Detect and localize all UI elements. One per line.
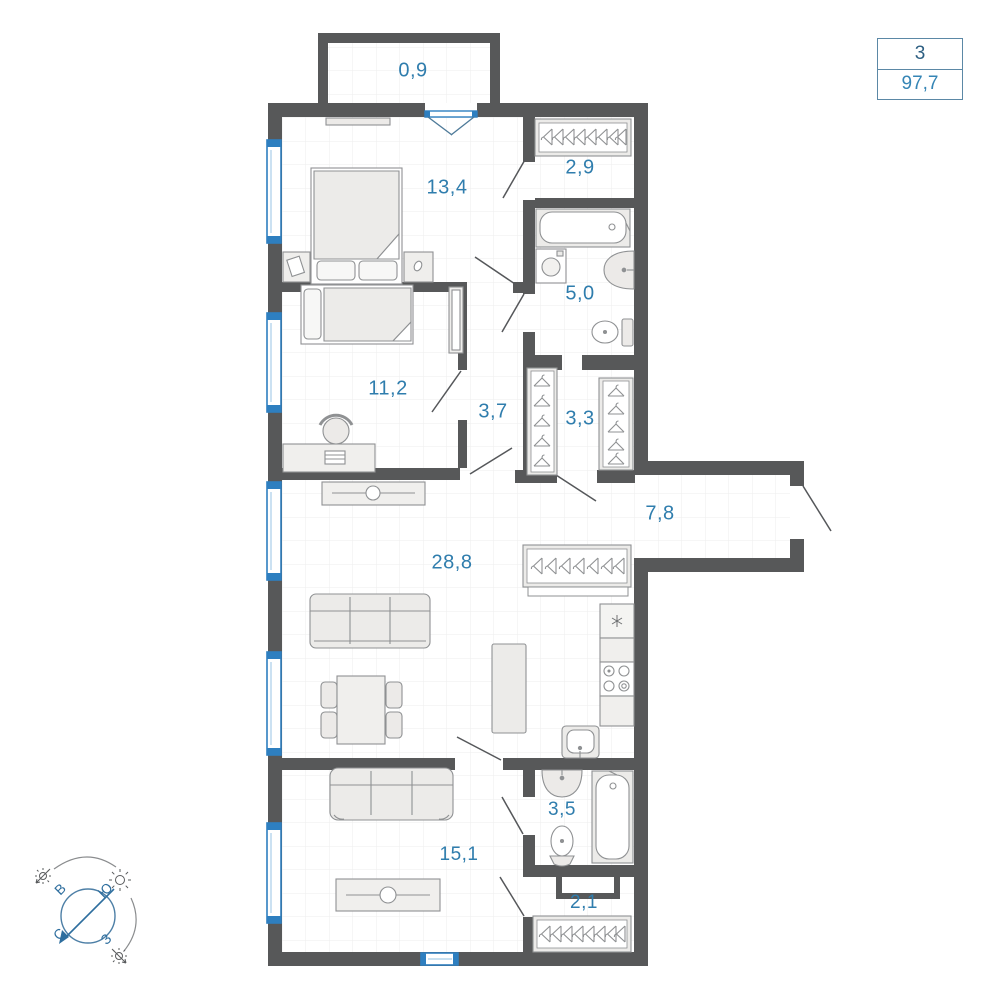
window bbox=[267, 823, 281, 923]
bathtub-icon bbox=[592, 771, 633, 863]
kitchen-counter bbox=[600, 638, 634, 662]
console-icon bbox=[322, 482, 425, 505]
wardrobe1-hangers-icon bbox=[535, 119, 631, 156]
sun-icon bbox=[35, 868, 51, 884]
kitchen-island-icon bbox=[492, 644, 526, 733]
tv-stand-icon bbox=[336, 879, 440, 911]
area-label-closet: 3,3 bbox=[565, 408, 594, 431]
window bbox=[267, 652, 281, 755]
area-label-hallway: 3,7 bbox=[478, 401, 507, 424]
area-label-wardrobe-1: 2,9 bbox=[565, 157, 594, 180]
kitchen-counter bbox=[600, 696, 634, 726]
window-bottom bbox=[421, 953, 458, 965]
badge-total-area: 97,7 bbox=[878, 70, 962, 100]
single-bed-icon bbox=[301, 285, 413, 344]
area-label-living-kitchen: 28,8 bbox=[432, 552, 473, 575]
double-bed-icon bbox=[311, 168, 402, 284]
sun-icon bbox=[111, 948, 127, 964]
area-label-bathroom-2: 3,5 bbox=[548, 799, 576, 821]
window bbox=[267, 140, 281, 243]
toilet-icon bbox=[550, 826, 574, 866]
shelf-icon bbox=[326, 118, 390, 125]
window bbox=[267, 313, 281, 412]
apartment-info-badge: 3 97,7 bbox=[877, 38, 963, 100]
area-label-wardrobe-2: 2,1 bbox=[570, 892, 598, 914]
compass-east-label: В bbox=[51, 880, 69, 898]
area-label-bathroom-1: 5,0 bbox=[565, 283, 594, 306]
compass-north-label: С bbox=[50, 925, 68, 943]
washing-machine-icon bbox=[536, 249, 566, 283]
badge-rooms-count: 3 bbox=[878, 39, 962, 70]
wardrobe2-hangers-icon bbox=[533, 916, 631, 952]
bathtub-icon bbox=[536, 209, 630, 247]
compass-west-label: З bbox=[97, 930, 114, 947]
window bbox=[267, 482, 281, 580]
compass-rose: В Ю С З bbox=[35, 857, 136, 964]
corridor-hangers-icon bbox=[523, 545, 631, 596]
sofa-icon bbox=[310, 594, 430, 648]
wardrobe-icon bbox=[449, 287, 463, 353]
shaft-niche bbox=[562, 877, 614, 893]
compass-south-label: Ю bbox=[94, 879, 115, 900]
kitchen-sink-icon bbox=[562, 726, 599, 758]
nightstand-icon bbox=[283, 252, 310, 282]
sun-icon bbox=[109, 869, 131, 891]
area-label-balcony: 0,9 bbox=[398, 60, 427, 83]
desk-icon bbox=[283, 444, 375, 472]
area-label-corridor: 7,8 bbox=[645, 503, 674, 526]
fridge-icon bbox=[600, 604, 634, 638]
area-label-living-room: 15,1 bbox=[440, 844, 479, 866]
floorplan-drawing: В Ю С З bbox=[0, 0, 1000, 1000]
nightstand-icon bbox=[404, 252, 433, 282]
area-label-bedroom-2: 11,2 bbox=[368, 378, 407, 401]
entrance-door bbox=[803, 486, 831, 531]
stove-icon bbox=[600, 662, 634, 696]
sofa-icon bbox=[330, 768, 453, 820]
floorplan-page: В Ю С З 0,9 13,4 2,9 5,0 11,2 3,7 3,3 7,… bbox=[0, 0, 1000, 1000]
area-label-bedroom-1: 13,4 bbox=[427, 177, 468, 200]
